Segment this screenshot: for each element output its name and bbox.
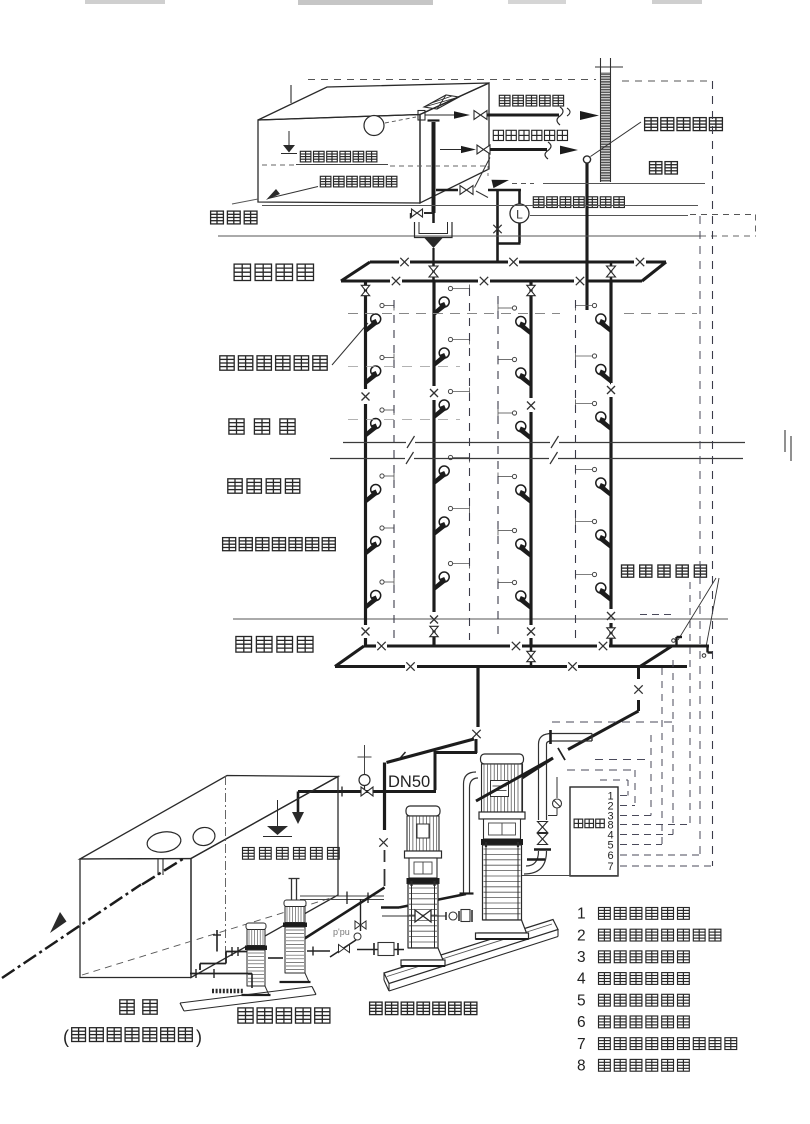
svg-text:DN50: DN50 — [388, 773, 430, 791]
svg-text:8: 8 — [577, 1058, 586, 1075]
svg-text:1: 1 — [577, 906, 586, 923]
svg-text:L: L — [516, 208, 523, 222]
svg-text:3: 3 — [577, 949, 586, 966]
svg-text:7: 7 — [577, 1036, 586, 1053]
svg-text:(: ( — [63, 1027, 69, 1047]
svg-text:2: 2 — [577, 927, 586, 944]
svg-text:7: 7 — [607, 861, 613, 873]
svg-text:5: 5 — [577, 992, 586, 1009]
svg-text:p'pu: p'pu — [333, 927, 350, 937]
svg-text:4: 4 — [577, 971, 586, 988]
svg-text:6: 6 — [577, 1014, 586, 1031]
svg-text:): ) — [196, 1027, 202, 1047]
